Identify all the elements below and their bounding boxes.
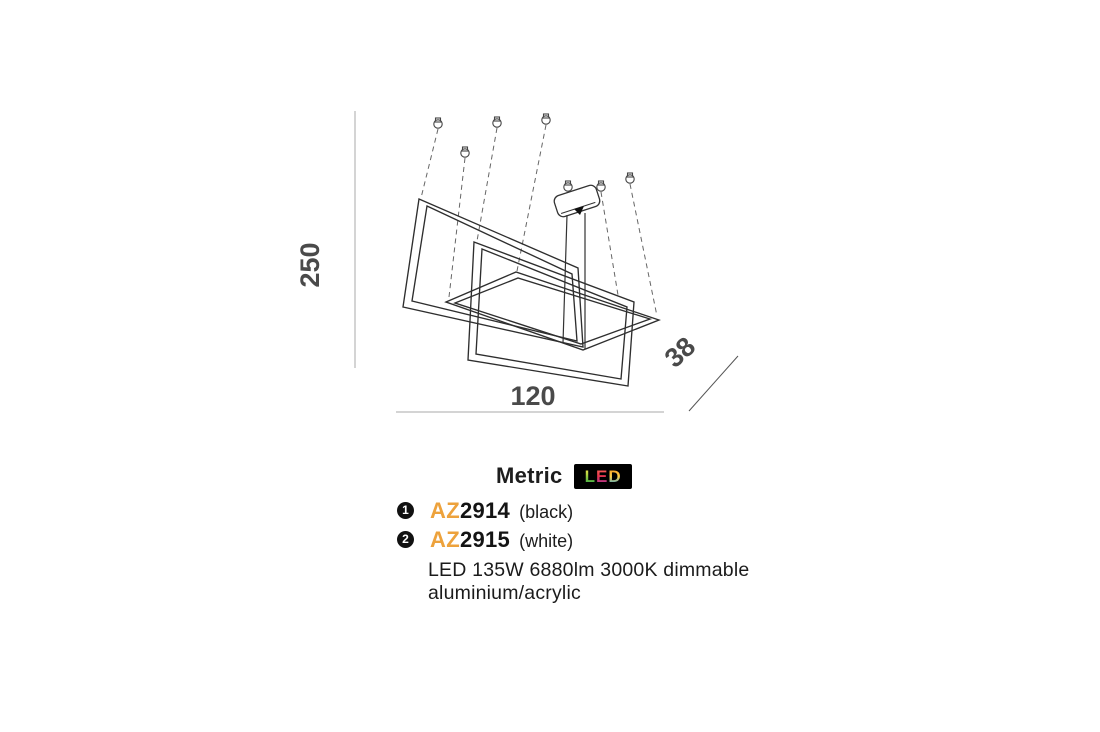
cable-dashed [517,125,546,271]
product-series-title: Metric [496,463,563,489]
mount-icon [542,114,550,124]
product-row: 2 AZ2915 (white) [397,527,573,551]
product-row: 1 AZ2914 (black) [397,498,573,522]
cable-dashed [477,128,497,241]
suspension-mounts [434,114,634,191]
mount-icon [434,118,442,128]
product-code-number: 2915 [460,527,510,552]
mount-icon [461,147,469,157]
product-code-number: 2914 [460,498,510,523]
cable-solid [563,215,567,343]
canopy-box [553,184,602,219]
dim-height-label: 250 [295,242,325,287]
cable-dashed [421,129,438,198]
product-code-prefix: AZ [430,498,460,523]
product-code: AZ2914 [430,498,510,524]
led-badge-letter: E [596,468,607,485]
product-variant: (black) [519,502,573,523]
mount-icon [626,173,634,183]
led-badge-letter: L [585,468,595,485]
product-code: AZ2915 [430,527,510,553]
numbered-bullet: 2 [397,531,414,548]
spec-line-material: aluminium/acrylic [428,582,749,605]
dim-width-label: 120 [510,381,555,411]
lamp-frames [403,199,659,386]
mount-icon [597,181,605,191]
product-sheet: 250 120 38 [0,0,1100,732]
product-specs: LED 135W 6880lm 3000K dimmable aluminium… [428,559,749,604]
product-code-prefix: AZ [430,527,460,552]
led-badge-letter: D [608,468,620,485]
product-list: 1 AZ2914 (black) 2 AZ2915 (white) [397,498,573,556]
cable-dashed [630,184,657,316]
canopy [553,184,602,219]
dim-depth-label: 38 [659,331,701,373]
numbered-bullet: 1 [397,502,414,519]
dim-depth-line [689,356,738,411]
cable-dashed [601,192,618,295]
title-row: Metric L E D [496,463,632,489]
mount-icon [493,117,501,127]
product-variant: (white) [519,531,573,552]
cable-dashed [449,158,465,297]
lamp-technical-drawing: 250 120 38 [0,0,1100,732]
spec-line-power: LED 135W 6880lm 3000K dimmable [428,559,749,582]
mount-icon [564,181,572,191]
led-badge-icon: L E D [574,464,632,489]
